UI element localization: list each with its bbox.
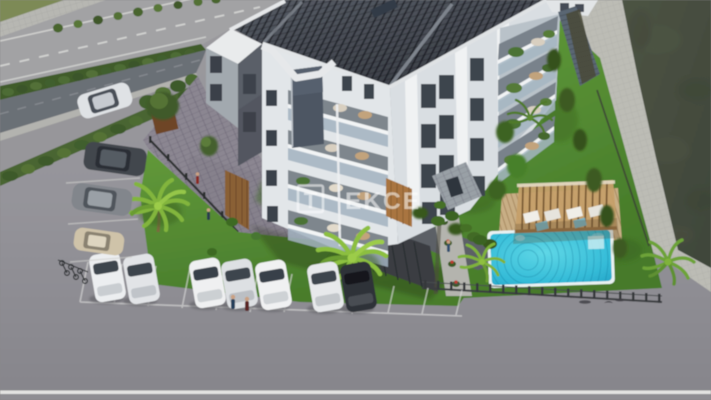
- svg-text:T: T: [304, 188, 318, 213]
- svg-text:EKCE: EKCE: [345, 188, 421, 215]
